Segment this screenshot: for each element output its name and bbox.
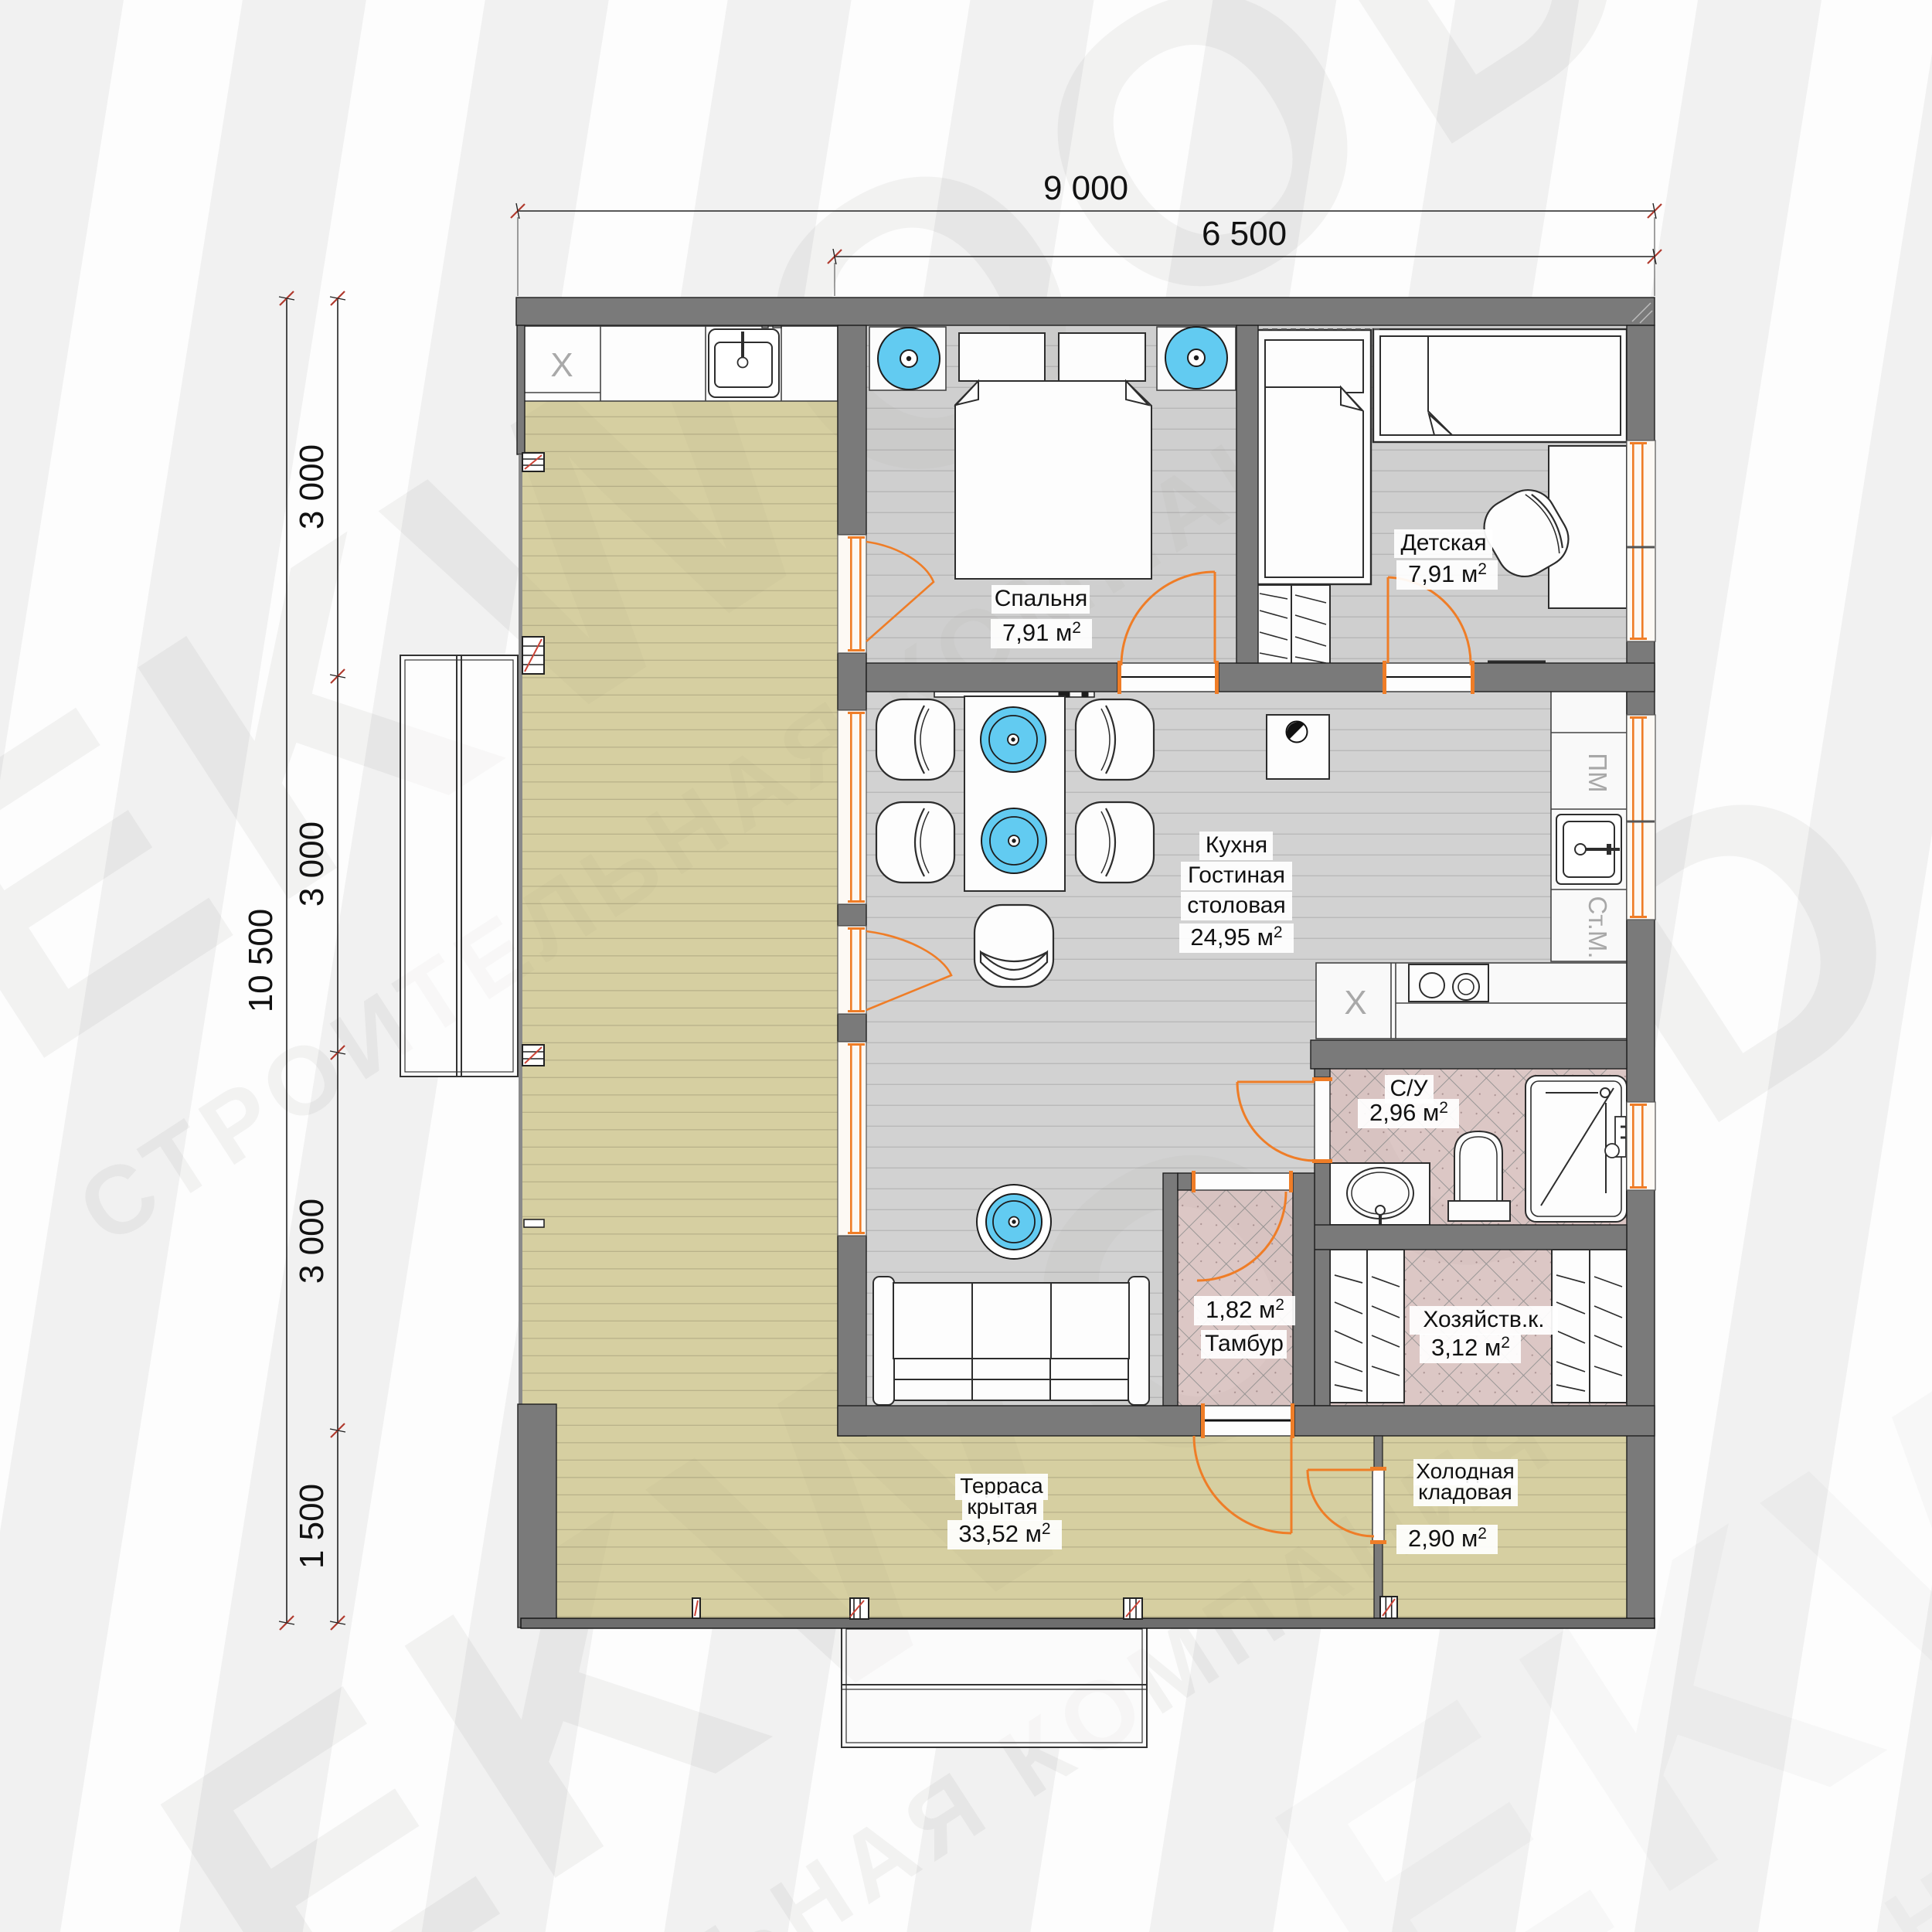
svg-text:X: X: [550, 346, 573, 384]
svg-text:Тамбур: Тамбур: [1205, 1331, 1284, 1356]
svg-text:2,96 м2: 2,96 м2: [1369, 1099, 1448, 1126]
svg-text:Детская: Детская: [1400, 530, 1486, 556]
svg-text:1,82 м2: 1,82 м2: [1206, 1296, 1284, 1323]
svg-text:Кухня: Кухня: [1206, 832, 1267, 858]
svg-text:Гостиная: Гостиная: [1188, 862, 1285, 888]
svg-text:9 000: 9 000: [1043, 169, 1128, 207]
svg-text:3,12 м2: 3,12 м2: [1431, 1334, 1510, 1361]
svg-text:2,90 м2: 2,90 м2: [1408, 1525, 1487, 1552]
svg-text:X: X: [1344, 984, 1366, 1022]
svg-text:7,91 м2: 7,91 м2: [1408, 560, 1487, 587]
svg-text:3 000: 3 000: [293, 1199, 331, 1284]
svg-text:10 500: 10 500: [242, 909, 280, 1013]
svg-text:крытая: крытая: [967, 1495, 1037, 1519]
svg-text:столовая: столовая: [1187, 893, 1286, 918]
svg-text:Хозяйств.к.: Хозяйств.к.: [1423, 1307, 1544, 1332]
svg-text:Ст.М.: Ст.М.: [1583, 896, 1612, 958]
svg-text:7,91 м2: 7,91 м2: [1002, 619, 1081, 646]
svg-text:ПМ: ПМ: [1583, 753, 1612, 792]
svg-text:1 500: 1 500: [293, 1484, 331, 1569]
svg-text:6 500: 6 500: [1202, 215, 1287, 253]
svg-text:3 000: 3 000: [293, 821, 331, 906]
svg-text:кладовая: кладовая: [1418, 1480, 1512, 1504]
svg-text:Спальня: Спальня: [995, 586, 1088, 611]
svg-text:33,52 м2: 33,52 м2: [958, 1520, 1050, 1547]
svg-text:С/У: С/У: [1389, 1076, 1428, 1101]
svg-text:24,95 м2: 24,95 м2: [1190, 923, 1282, 951]
svg-text:3 000: 3 000: [293, 444, 331, 529]
